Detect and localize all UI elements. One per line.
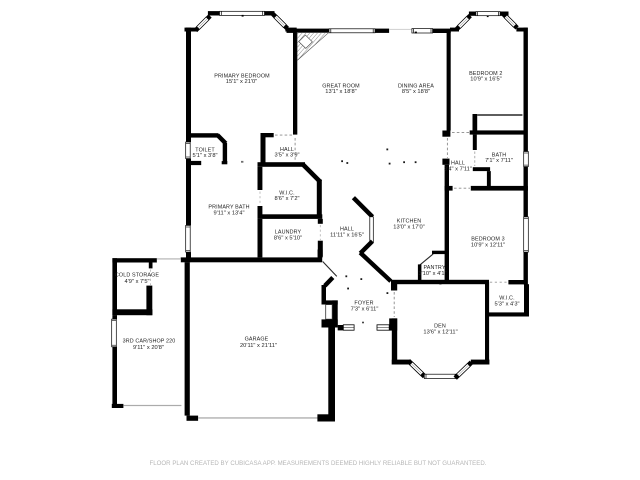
- svg-text:4'9" x 7'5": 4'9" x 7'5": [124, 279, 149, 285]
- svg-text:W.I.C.: W.I.C.: [499, 295, 514, 301]
- svg-text:11'11" x 16'5": 11'11" x 16'5": [330, 233, 364, 239]
- svg-text:BEDROOM 3: BEDROOM 3: [471, 236, 504, 242]
- svg-text:13'1" x 18'8": 13'1" x 18'8": [325, 89, 356, 95]
- svg-text:3RD CAR/SHOP 220: 3RD CAR/SHOP 220: [123, 338, 176, 344]
- svg-text:GARAGE: GARAGE: [245, 336, 269, 342]
- svg-text:3'4" x 7'11": 3'4" x 7'11": [444, 166, 472, 172]
- svg-text:FOYER: FOYER: [354, 300, 373, 306]
- svg-text:COLD STORAGE: COLD STORAGE: [115, 273, 159, 279]
- svg-text:10'9" x 16'5": 10'9" x 16'5": [470, 77, 501, 83]
- svg-text:5'3" x 4'3": 5'3" x 4'3": [494, 302, 519, 308]
- svg-text:5'1" x 3'8": 5'1" x 3'8": [192, 153, 217, 159]
- svg-text:7'1" x 7'11": 7'1" x 7'11": [485, 158, 513, 164]
- svg-text:9'11" x 20'8": 9'11" x 20'8": [133, 345, 164, 351]
- svg-text:HALL: HALL: [340, 226, 354, 232]
- svg-text:3'5" x 3'9": 3'5" x 3'9": [274, 153, 299, 159]
- svg-text:13'0" x 17'0": 13'0" x 17'0": [393, 225, 424, 231]
- svg-text:LAUNDRY: LAUNDRY: [275, 229, 302, 235]
- svg-text:20'11" x 21'11": 20'11" x 21'11": [240, 343, 277, 349]
- svg-text:7'3" x 6'11": 7'3" x 6'11": [351, 307, 379, 313]
- svg-text:KITCHEN: KITCHEN: [397, 218, 422, 224]
- svg-text:FLOOR PLAN CREATED BY CUBICASA: FLOOR PLAN CREATED BY CUBICASA APP. MEAS…: [150, 460, 487, 467]
- svg-text:8'6" x 5'10": 8'6" x 5'10": [274, 236, 302, 242]
- svg-text:13'6" x 12'11": 13'6" x 12'11": [423, 330, 457, 336]
- svg-text:PRIMARY BATH: PRIMARY BATH: [208, 204, 249, 210]
- svg-text:9'11" x 13'4": 9'11" x 13'4": [213, 211, 244, 217]
- svg-text:8'6" x 7'2": 8'6" x 7'2": [274, 196, 299, 202]
- svg-text:8'5" x 18'8": 8'5" x 18'8": [402, 89, 430, 95]
- svg-text:15'1" x 21'0": 15'1" x 21'0": [226, 79, 257, 85]
- svg-text:DEN: DEN: [434, 323, 446, 329]
- svg-text:3'10" x 4'1": 3'10" x 4'1": [418, 271, 446, 277]
- svg-text:10'9" x 12'11": 10'9" x 12'11": [471, 243, 505, 249]
